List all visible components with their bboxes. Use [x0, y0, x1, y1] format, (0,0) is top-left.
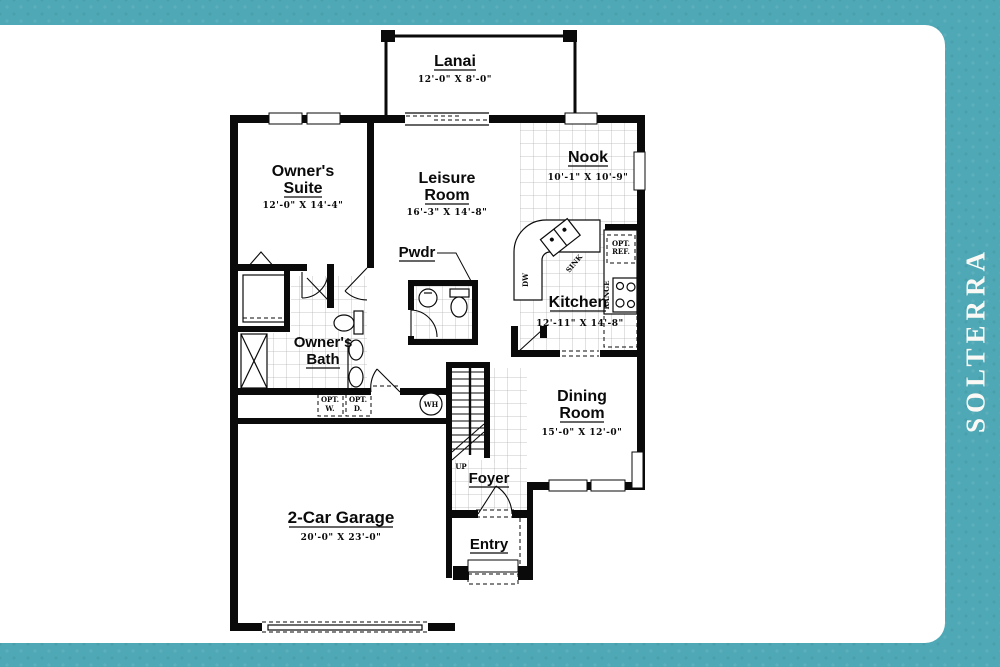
window	[549, 480, 587, 491]
leisure-room-name: Leisure	[419, 170, 476, 187]
window	[632, 452, 643, 488]
laundry: OPT. W. OPT. D. WH	[318, 393, 442, 416]
porch-outline	[468, 574, 518, 584]
leisure-room-dims: 16'-3" X 14'-8"	[407, 208, 488, 218]
window	[307, 113, 340, 124]
bath-sink	[349, 367, 363, 387]
kitchen-dims: 12'-11" X 14'-8"	[536, 319, 623, 329]
toilet	[334, 315, 354, 331]
lanai-post	[563, 30, 577, 42]
svg-text:Bath: Bath	[306, 351, 339, 368]
garage-name: 2-Car Garage	[288, 508, 395, 527]
entry-pillar	[518, 566, 533, 580]
window	[565, 113, 597, 124]
toilet-tank	[450, 289, 469, 297]
toilet	[451, 297, 467, 317]
garage-dims: 20'-0" X 23'-0"	[301, 533, 382, 543]
sliding-door	[405, 113, 489, 125]
stairs-up-label: UP	[455, 462, 467, 471]
owners-suite-dims: 12'-0" X 14'-4"	[263, 201, 344, 211]
window	[591, 480, 625, 491]
svg-text:Suite: Suite	[283, 180, 322, 197]
nook-name: Nook	[568, 149, 608, 166]
nook-dims: 10'-1" X 10'-9"	[548, 173, 629, 183]
lanai-name: Lanai	[434, 53, 476, 70]
lanai-post	[381, 30, 395, 42]
owners-bath-name: Owner's	[294, 334, 353, 351]
foyer-name: Foyer	[469, 470, 510, 487]
dining-room-name: Dining	[557, 388, 607, 405]
opt-dryer-label: D.	[354, 404, 362, 413]
powder-leader-line	[437, 253, 471, 281]
garage-hall-door	[371, 369, 400, 392]
entry-step	[468, 560, 518, 572]
window	[269, 113, 302, 124]
opt-washer-label: W.	[324, 404, 334, 413]
powder-sink	[419, 289, 437, 307]
opt-dryer-label: OPT.	[349, 395, 367, 404]
flyer-background: SOLTERRA	[0, 0, 1000, 667]
lanai-dims: 12'-0" X 8'-0"	[418, 75, 492, 85]
entry-pillar	[453, 566, 469, 580]
room-lanai	[381, 30, 577, 115]
dishwasher-label: DW	[521, 273, 530, 287]
garage-door	[262, 619, 428, 632]
floorplan-drawing: UP	[0, 0, 1000, 667]
owners-suite-name: Owner's	[272, 163, 335, 180]
water-heater-label: WH	[423, 400, 439, 409]
kitchen-name: Kitchen	[549, 294, 608, 311]
svg-text:Room: Room	[424, 187, 469, 204]
front-door-threshold	[476, 510, 514, 517]
opt-fridge-label: REF.	[612, 247, 630, 256]
toilet-tank	[354, 311, 363, 334]
opt-washer-label: OPT.	[321, 395, 339, 404]
svg-text:Room: Room	[559, 405, 604, 422]
window	[634, 152, 645, 190]
closet-shelves	[243, 275, 285, 322]
powder-name: Pwdr	[399, 244, 436, 261]
entry-name: Entry	[470, 536, 509, 553]
dining-room-dims: 15'-0" X 12'-0"	[542, 428, 623, 438]
stairs: UP	[452, 368, 484, 471]
serving-counter	[562, 351, 599, 356]
